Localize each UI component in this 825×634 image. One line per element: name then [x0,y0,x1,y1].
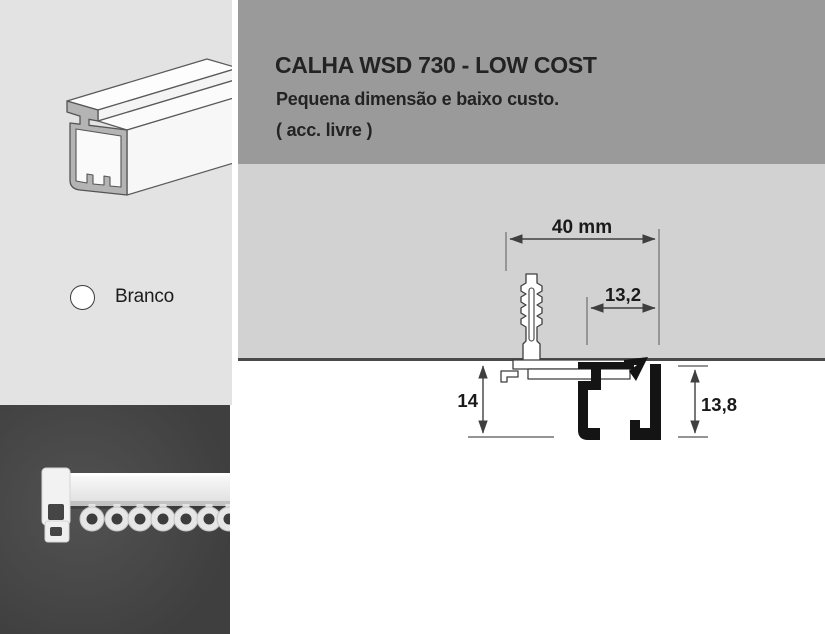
track-end-cap [42,468,70,542]
product-render-panel: Branco [0,0,232,405]
catalog-page: Branco [0,0,825,634]
profile-left-channel [578,381,601,440]
dim-label-13-2: 13,2 [605,284,641,305]
dim-label-40mm: 40 mm [552,217,612,238]
dim-label-14: 14 [457,390,478,411]
finish-option-row: Branco [70,282,174,312]
dim-label-13-8: 13,8 [701,394,737,415]
track-bar [56,473,230,509]
dimension-diagram: 40 mm 13,2 14 13,8 [238,0,825,634]
spec-panel: CALHA WSD 730 - LOW COST Pequena dimensã… [238,0,825,634]
color-swatch-branco [70,285,95,310]
dimension-lines [483,239,695,433]
wall-plug-drawing [521,274,542,361]
rail-channel-interior [76,129,121,187]
product-photo-panel [0,405,230,634]
rail-with-gliders-photo [0,405,230,634]
rail-profile-3d-drawing [0,0,232,405]
color-swatch-label: Branco [115,286,174,308]
